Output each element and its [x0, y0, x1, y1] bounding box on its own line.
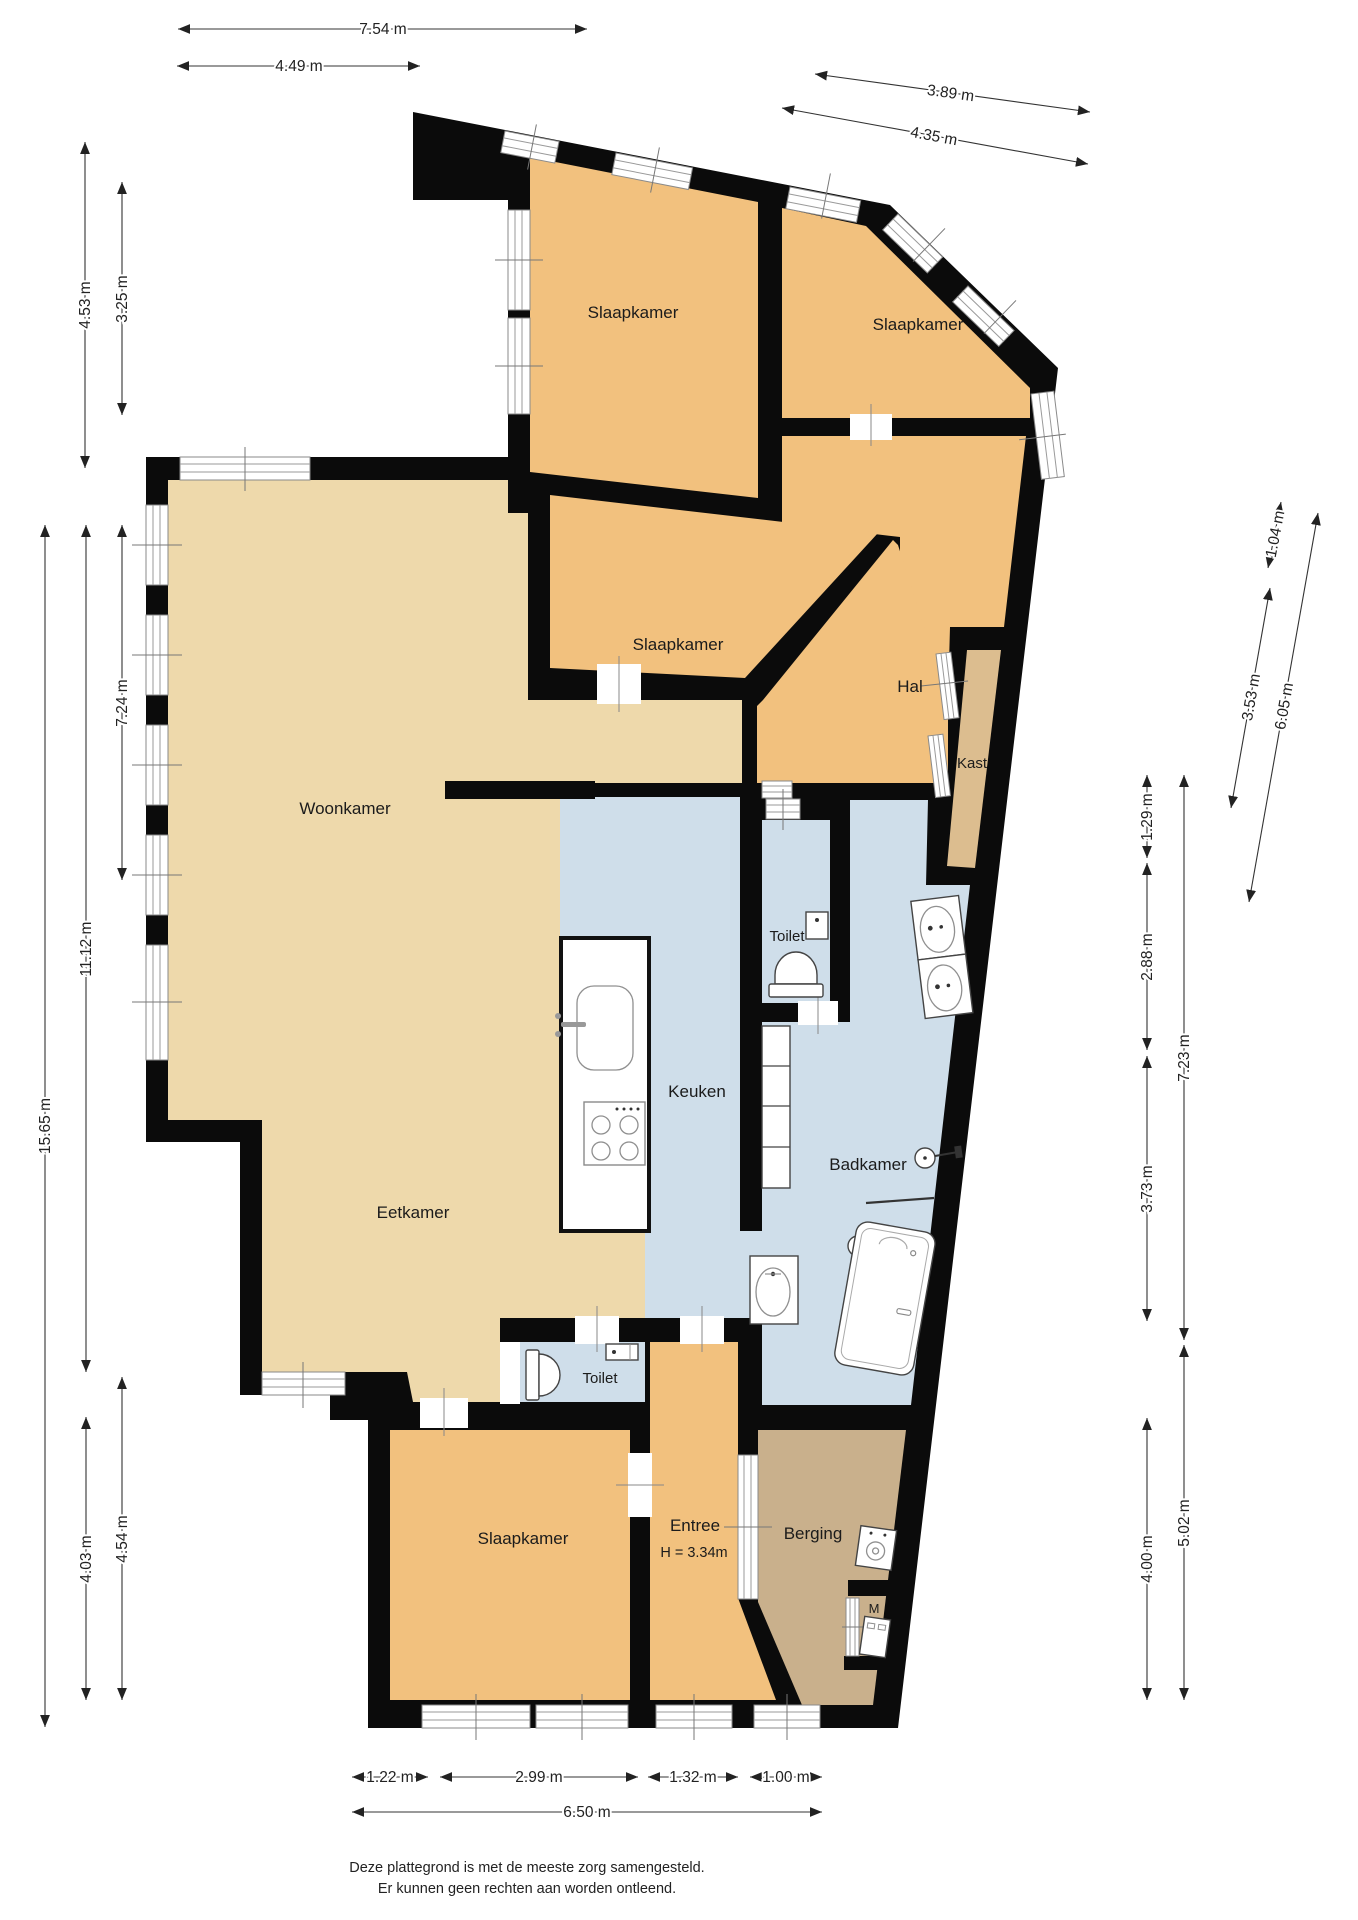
faucet-icon: [561, 1022, 586, 1027]
cooktop-icon: [584, 1102, 645, 1165]
svg-text:1.22 m: 1.22 m: [366, 1769, 413, 1786]
svg-text:15.65 m: 15.65 m: [37, 1098, 54, 1154]
svg-text:3.25 m: 3.25 m: [114, 275, 131, 322]
dimension-bottom-3: 1.00 m: [750, 1769, 822, 1786]
room-label-meter: M: [869, 1601, 880, 1616]
svg-text:3.73 m: 3.73 m: [1139, 1165, 1156, 1212]
room-label-entree-height: H = 3.34m: [660, 1545, 727, 1561]
floorplan-svg: Slaapkamer Slaapkamer Slaapkamer Hal Kas…: [0, 0, 1358, 1920]
footer-line-1: Deze plattegrond is met de meeste zorg s…: [349, 1860, 704, 1876]
svg-text:5.02 m: 5.02 m: [1176, 1499, 1193, 1546]
washbasin-icon: [750, 1256, 798, 1324]
svg-text:11.12 m: 11.12 m: [78, 922, 95, 977]
room-slaapkamer-bottom-floor: [390, 1430, 630, 1700]
dimension-right-4: 7.23 m: [1176, 775, 1193, 1340]
svg-text:6.50 m: 6.50 m: [563, 1804, 610, 1821]
svg-text:4.03 m: 4.03 m: [78, 1535, 95, 1582]
room-label-woonkamer: Woonkamer: [299, 799, 391, 818]
room-slaapkamer-tl-floor: [530, 157, 758, 498]
meter-cabinet-icon: [859, 1616, 890, 1657]
dimension-bottom-2: 1.32 m: [648, 1769, 738, 1786]
dimension-top-2: 3.89 m: [815, 74, 1090, 112]
svg-text:7.24 m: 7.24 m: [114, 679, 131, 726]
svg-text:2.99 m: 2.99 m: [515, 1769, 562, 1786]
kitchen-counter: [762, 1026, 790, 1188]
svg-text:4.53 m: 4.53 m: [77, 281, 94, 328]
dimension-bottom-0: 1.22 m: [352, 1769, 428, 1786]
room-label-entree: Entree: [670, 1516, 720, 1535]
dimension-right-5: 5.02 m: [1176, 1345, 1193, 1700]
dimension-left-0: 4.53 m: [77, 142, 94, 468]
room-label-hal: Hal: [897, 677, 923, 696]
dimension-left-1: 3.25 m: [114, 182, 131, 415]
dimension-top-3: 4.35 m: [782, 108, 1088, 164]
dimension-right-slanted-1: 3.53 m: [1231, 588, 1270, 808]
toilet-recess: [500, 1342, 520, 1404]
svg-text:4.54 m: 4.54 m: [114, 1515, 131, 1562]
svg-text:4.49 m: 4.49 m: [275, 58, 322, 75]
room-label-badkamer: Badkamer: [829, 1155, 907, 1174]
dimension-right-1: 2.88 m: [1139, 863, 1156, 1050]
footer-line-2: Er kunnen geen rechten aan worden ontlee…: [378, 1881, 676, 1897]
room-label-slaapkamer-tr: Slaapkamer: [873, 315, 964, 334]
room-label-slaapkamer-tl: Slaapkamer: [588, 303, 679, 322]
room-label-kast: Kast: [957, 755, 988, 772]
room-label-toilet-upper: Toilet: [769, 928, 805, 945]
svg-text:7.23 m: 7.23 m: [1176, 1034, 1193, 1081]
svg-text:1.29 m: 1.29 m: [1139, 793, 1156, 840]
dimension-top-1: 4.49 m: [177, 58, 420, 75]
dimension-right-2: 3.73 m: [1139, 1056, 1156, 1321]
dimension-left-6: 4.54 m: [114, 1377, 131, 1700]
room-label-keuken: Keuken: [668, 1082, 726, 1101]
room-label-slaapkamer-mid: Slaapkamer: [633, 635, 724, 654]
dimension-bottom-4: 6.50 m: [352, 1804, 822, 1821]
dimension-left-4: 7.24 m: [114, 525, 131, 880]
dimension-left-2: 15.65 m: [37, 525, 54, 1727]
svg-text:6.05 m: 6.05 m: [1272, 681, 1297, 731]
svg-text:4.35 m: 4.35 m: [909, 124, 959, 149]
washing-machine-icon: [855, 1526, 896, 1571]
dimension-left-3: 11.12 m: [78, 525, 95, 1372]
dimension-bottom-1: 2.99 m: [440, 1769, 638, 1786]
wall-berging-niche-bottom: [844, 1656, 890, 1670]
room-label-toilet-lower: Toilet: [582, 1370, 618, 1387]
dimension-right-slanted-2: 6.05 m: [1249, 513, 1318, 902]
svg-text:3.53 m: 3.53 m: [1239, 672, 1264, 722]
wall-berging-niche-top: [848, 1580, 902, 1596]
svg-text:4.00 m: 4.00 m: [1139, 1535, 1156, 1582]
kitchen-island: [555, 938, 649, 1231]
dimension-right-slanted-0: 1.04 m: [1263, 502, 1289, 568]
svg-text:1.04 m: 1.04 m: [1263, 509, 1289, 559]
svg-text:1.00 m: 1.00 m: [762, 1769, 809, 1786]
dimension-top-0: 7.54 m: [178, 21, 587, 38]
svg-text:7.54 m: 7.54 m: [359, 21, 406, 38]
wall-kitchen-divider: [445, 781, 595, 799]
dimension-right-0: 1.29 m: [1139, 775, 1156, 858]
svg-text:1.32 m: 1.32 m: [669, 1769, 716, 1786]
svg-text:2.88 m: 2.88 m: [1139, 933, 1156, 980]
svg-text:3.89 m: 3.89 m: [926, 82, 975, 105]
room-label-berging: Berging: [784, 1524, 843, 1543]
dimension-left-5: 4.03 m: [78, 1417, 95, 1700]
window: [762, 781, 792, 798]
dimension-right-3: 4.00 m: [1139, 1418, 1156, 1700]
floorplan-page: Slaapkamer Slaapkamer Slaapkamer Hal Kas…: [0, 0, 1358, 1920]
room-label-eetkamer: Eetkamer: [377, 1203, 450, 1222]
room-label-slaapkamer-bottom: Slaapkamer: [478, 1529, 569, 1548]
